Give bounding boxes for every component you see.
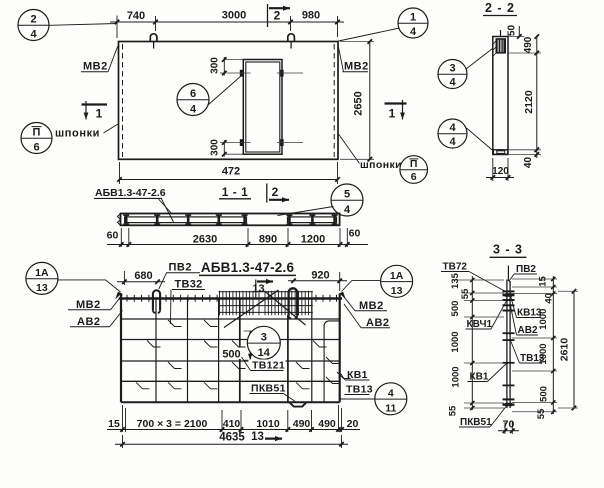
svg-text:АВ2: АВ2: [366, 317, 390, 329]
svg-text:20: 20: [347, 418, 359, 430]
svg-text:ПВ2: ПВ2: [169, 262, 192, 274]
svg-text:1010: 1010: [256, 418, 280, 430]
svg-text:1000: 1000: [450, 331, 461, 352]
svg-text:4: 4: [30, 28, 37, 40]
svg-text:МВ2: МВ2: [344, 61, 369, 73]
svg-text:1000: 1000: [451, 366, 462, 387]
svg-text:4: 4: [190, 103, 197, 115]
svg-text:3 - 3: 3 - 3: [493, 243, 523, 257]
svg-text:ТВ121: ТВ121: [252, 360, 285, 372]
svg-text:2 - 2: 2 - 2: [485, 1, 515, 15]
svg-text:1 - 1: 1 - 1: [222, 185, 249, 199]
svg-text:472: 472: [222, 166, 240, 178]
svg-text:4635: 4635: [219, 432, 245, 444]
svg-text:13: 13: [251, 431, 264, 443]
svg-text:300: 300: [210, 57, 221, 74]
svg-text:АБВ1.3-47-2.6: АБВ1.3-47-2.6: [95, 187, 166, 199]
svg-text:3: 3: [449, 63, 455, 75]
svg-text:2: 2: [30, 14, 36, 26]
svg-text:920: 920: [311, 269, 329, 281]
svg-text:МВ2: МВ2: [359, 300, 384, 312]
svg-text:60: 60: [107, 230, 119, 242]
svg-text:П: П: [33, 127, 41, 139]
svg-text:13: 13: [252, 283, 264, 295]
svg-text:1А: 1А: [35, 267, 49, 279]
svg-text:700 × 3 = 2100: 700 × 3 = 2100: [137, 418, 208, 430]
svg-text:ПВ2: ПВ2: [516, 264, 536, 275]
svg-text:1: 1: [410, 12, 416, 24]
svg-text:13: 13: [36, 282, 48, 294]
svg-text:40: 40: [544, 293, 555, 304]
svg-text:740: 740: [127, 10, 145, 22]
svg-text:1: 1: [389, 107, 396, 121]
svg-text:шпонки: шпонки: [55, 128, 100, 140]
svg-text:4: 4: [344, 204, 351, 216]
svg-text:55: 55: [460, 288, 471, 299]
svg-text:1000: 1000: [538, 309, 549, 330]
svg-text:6: 6: [411, 171, 417, 183]
svg-text:ТВ13: ТВ13: [346, 384, 373, 396]
svg-text:490: 490: [293, 418, 311, 430]
svg-text:2650: 2650: [353, 91, 365, 115]
svg-text:50: 50: [507, 25, 518, 37]
svg-text:1А: 1А: [390, 270, 404, 282]
svg-text:6: 6: [33, 141, 39, 153]
svg-text:АВ2: АВ2: [518, 325, 538, 336]
svg-text:70: 70: [503, 419, 515, 431]
svg-text:500: 500: [450, 301, 461, 317]
svg-text:55: 55: [536, 408, 547, 419]
svg-text:490: 490: [523, 36, 534, 53]
svg-text:2: 2: [274, 9, 281, 23]
svg-text:шпонки: шпонки: [360, 159, 402, 171]
svg-text:890: 890: [259, 234, 277, 246]
svg-text:2120: 2120: [523, 90, 535, 114]
svg-text:3000: 3000: [222, 10, 246, 22]
svg-text:14: 14: [258, 347, 271, 359]
svg-text:6: 6: [190, 88, 196, 100]
svg-text:АВ2: АВ2: [77, 316, 101, 328]
svg-text:11: 11: [385, 403, 396, 415]
svg-text:15: 15: [538, 276, 549, 287]
svg-text:ТВ32: ТВ32: [175, 279, 203, 291]
svg-text:980: 980: [302, 10, 320, 22]
svg-text:МВ2: МВ2: [76, 299, 101, 311]
svg-text:490: 490: [318, 418, 336, 430]
svg-text:АБВ1.3-47-2.6: АБВ1.3-47-2.6: [201, 260, 295, 275]
svg-text:МВ2: МВ2: [83, 61, 108, 73]
svg-text:680: 680: [134, 270, 152, 282]
svg-text:4: 4: [449, 122, 456, 134]
svg-text:15: 15: [108, 418, 120, 430]
svg-text:2630: 2630: [193, 234, 217, 246]
svg-text:410: 410: [223, 418, 241, 430]
svg-text:135: 135: [450, 272, 461, 289]
svg-text:120: 120: [492, 166, 509, 177]
svg-text:40: 40: [523, 157, 534, 169]
svg-text:ПКВ51: ПКВ51: [251, 383, 286, 395]
svg-text:60: 60: [349, 228, 361, 240]
svg-text:2: 2: [272, 185, 279, 199]
svg-text:5: 5: [344, 189, 350, 201]
svg-text:500: 500: [539, 386, 550, 402]
svg-text:ТВ72: ТВ72: [443, 262, 468, 273]
svg-text:55: 55: [448, 405, 459, 416]
svg-text:КВ1: КВ1: [347, 369, 368, 381]
svg-text:4: 4: [449, 76, 456, 88]
svg-text:500: 500: [222, 349, 240, 361]
svg-text:4: 4: [410, 26, 417, 38]
svg-text:1: 1: [96, 107, 103, 121]
svg-text:4: 4: [388, 387, 394, 399]
svg-text:КВЧ1: КВЧ1: [467, 319, 493, 330]
svg-text:П: П: [410, 158, 418, 170]
svg-text:2610: 2610: [559, 338, 571, 362]
svg-text:300: 300: [210, 139, 221, 156]
svg-text:4: 4: [449, 136, 456, 148]
svg-text:13: 13: [391, 285, 403, 297]
svg-text:ПКВ51: ПКВ51: [460, 417, 492, 428]
svg-text:1200: 1200: [301, 234, 325, 246]
svg-text:1000: 1000: [538, 343, 549, 364]
svg-text:3: 3: [261, 331, 267, 343]
